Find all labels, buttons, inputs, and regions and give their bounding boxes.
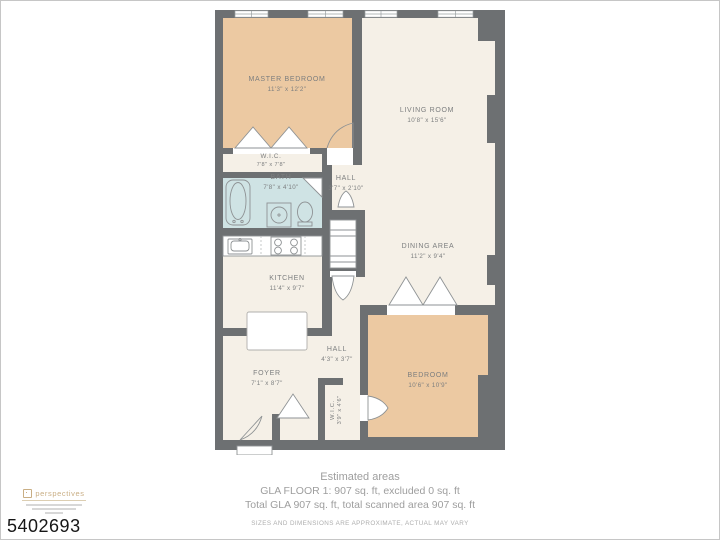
room-label-hall-upper: HALL 3'7" x 2'10" — [328, 175, 363, 193]
room-label-dining-area: DINING AREA 11'2" x 9'4" — [402, 243, 455, 261]
window — [365, 11, 397, 17]
brand-logo-icon — [23, 489, 32, 498]
wall-pilaster-living — [487, 95, 495, 143]
room-label-hall-lower: HALL 4'3" x 3'7" — [321, 346, 352, 364]
disclaimer: SIZES AND DIMENSIONS ARE APPROXIMATE, AC… — [0, 520, 720, 527]
stove — [271, 237, 301, 255]
room-label-bedroom: BEDROOM 10'6" x 10'9" — [407, 372, 448, 390]
room-label-wic-upper: W.I.C. 7'8" x 7'8" — [257, 153, 286, 169]
room-label-master-bedroom: MASTER BEDROOM 11'3" x 12'2" — [248, 76, 325, 94]
brand-tagline — [32, 508, 76, 510]
doorway-bedroom-french — [387, 305, 455, 315]
floor-plan-page: MASTER BEDROOM 11'3" x 12'2" W.I.C. 7'8"… — [0, 0, 720, 540]
wall-pilaster-dining — [487, 255, 495, 285]
room-label-wic-lower: W.I.C. 3'9" x 4'6" — [330, 396, 344, 425]
room-area-living-room — [362, 18, 495, 165]
estimated-areas-title: Estimated areas — [0, 471, 720, 483]
room-label-bath: BATH 7'8" x 4'10" — [263, 174, 298, 192]
brand-tagline — [26, 504, 82, 506]
window — [235, 11, 268, 17]
room-label-foyer: FOYER 7'1" x 8'7" — [251, 370, 282, 388]
floor-plan: MASTER BEDROOM 11'3" x 12'2" W.I.C. 7'8"… — [215, 10, 505, 455]
foyer-table — [247, 312, 307, 350]
wic-lower-top-wall — [325, 378, 343, 385]
brand-tagline — [45, 512, 63, 514]
brand-logo-row: perspectives — [14, 489, 94, 498]
brand-divider — [22, 500, 86, 501]
window — [308, 11, 343, 17]
room-label-kitchen: KITCHEN 11'4" x 9'7" — [269, 275, 305, 293]
gla-floor-line: GLA FLOOR 1: 907 sq. ft, excluded 0 sq. … — [0, 485, 720, 499]
wall-pilaster-top — [478, 18, 495, 41]
brand-logo: perspectives — [14, 489, 94, 516]
window — [438, 11, 473, 17]
room-label-living-room: LIVING ROOM 10'8" x 15'6" — [400, 107, 454, 125]
room-area-hall-corridor — [332, 305, 360, 336]
entry-threshold — [237, 446, 272, 455]
doorway-bedroom — [360, 395, 368, 421]
brand-logo-text: perspectives — [35, 489, 84, 498]
estimated-areas: Estimated areas GLA FLOOR 1: 907 sq. ft,… — [0, 471, 720, 527]
wic-lower-left-wall — [318, 378, 325, 440]
photo-id: 5402693 — [7, 516, 81, 537]
gla-total-line: Total GLA 907 sq. ft, total scanned area… — [0, 499, 720, 513]
doorway-master-bedroom — [327, 148, 353, 165]
utility-closet — [330, 220, 356, 268]
